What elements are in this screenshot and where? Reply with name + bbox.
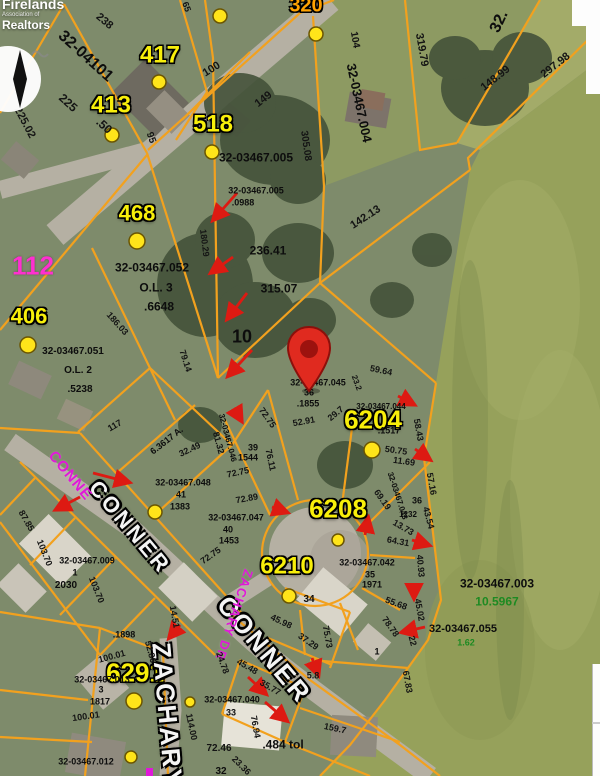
dimension-label: 22 xyxy=(406,635,418,647)
dimension-label: 117 xyxy=(106,418,123,433)
watermark-firelands: Firelands xyxy=(2,0,64,12)
dimension-label: 159.7 xyxy=(323,722,347,736)
dimension-label: 236.41 xyxy=(250,245,287,258)
dimension-label: 23.36 xyxy=(230,755,253,776)
ui-cutout-divider xyxy=(592,722,600,724)
dimension-label: 75.73 xyxy=(320,625,333,649)
parcel-number-label[interactable]: 413 xyxy=(91,92,131,117)
dimension-label: 72.46 xyxy=(206,744,231,755)
parcel-id-label: 1453 xyxy=(219,536,239,545)
watermark-realtors: Realtors xyxy=(2,18,64,32)
dimension-label: 297.98 xyxy=(539,51,573,81)
parcel-id-label: 32-03467.051 xyxy=(42,347,104,358)
dimension-label: 72.89 xyxy=(235,492,259,505)
dimension-label: 58.43 xyxy=(411,418,424,442)
dimension-label: 65 xyxy=(180,1,192,14)
parcel-id-label: 32-03467.005 xyxy=(228,186,284,195)
dimension-label: 305.08 xyxy=(298,130,313,162)
dimension-label: .50 xyxy=(94,116,115,137)
ui-cutout-panel-top-strip xyxy=(586,26,600,94)
dimension-label: 72.75 xyxy=(257,406,278,430)
parcel-id-label: 40 xyxy=(223,525,233,534)
dimension-label: 238 xyxy=(93,12,114,33)
dimension-label: 142.13 xyxy=(349,204,384,232)
parcel-id-label: 32-03467.004 xyxy=(344,62,374,143)
parcel-number-label[interactable]: 6208 xyxy=(309,495,367,522)
parcel-id-label: 32-03467.042 xyxy=(339,558,395,567)
parcel-id-label: .1517 xyxy=(378,426,401,435)
dimension-label: 100 xyxy=(201,60,223,80)
ui-cutout-panel-bottom xyxy=(592,664,600,776)
dimension-label: 5.8 xyxy=(307,671,320,680)
route-number-label: 112 xyxy=(12,252,54,279)
location-pin[interactable] xyxy=(286,325,334,397)
parcel-id-label: 32-03467.047 xyxy=(208,513,264,522)
dimension-label: 72.75 xyxy=(199,546,223,567)
dimension-label: 100.01 xyxy=(72,710,101,723)
dimension-label: 149 xyxy=(253,90,275,110)
dimension-label: 32.49 xyxy=(178,441,202,459)
parcel-number-label[interactable]: 6210 xyxy=(260,553,313,578)
dimension-label: 315.07 xyxy=(261,283,298,296)
dimension-label: 103.70 xyxy=(34,538,53,567)
dimension-label: 69.19 xyxy=(372,488,393,512)
dimension-label: 45.98 xyxy=(269,613,293,631)
dimension-label: 59.64 xyxy=(369,364,393,378)
watermark: Firelands Association of Realtors xyxy=(2,0,64,32)
parcel-id-label: 1 xyxy=(72,568,77,577)
parcel-number-label[interactable]: 468 xyxy=(119,201,156,224)
dimension-label: 180.29 xyxy=(198,229,211,257)
ui-cutout-panel-top xyxy=(572,0,600,26)
dimension-label: 95 xyxy=(143,131,157,145)
parcel-id-label: 34 xyxy=(303,595,314,606)
map-canvas[interactable]: 4174135184684066204620862106291320112CON… xyxy=(0,0,600,776)
dimension-label: 225 xyxy=(56,92,79,115)
parcel-id-label: 32-04101 xyxy=(54,28,115,86)
compass-icon[interactable] xyxy=(0,22,52,132)
parcel-id-label: .1898 xyxy=(113,630,136,639)
parcel-id-label: 33 xyxy=(226,708,236,717)
acreage-label: 10.5967 xyxy=(475,596,518,609)
parcel-id-label: 32-03467.005 xyxy=(219,152,293,165)
acreage-label: 1.62 xyxy=(457,638,475,647)
dimension-label: 114.00 xyxy=(184,713,199,741)
parcel-id-label: 1817 xyxy=(90,697,110,706)
parcel-id-label: 32-03467.052 xyxy=(115,262,189,275)
dimension-label: 45.02 xyxy=(412,598,425,622)
parcel-id-label: 1544 xyxy=(238,453,258,462)
parcel-id-label: O.L. 2 xyxy=(64,366,92,377)
dimension-label: 55.68 xyxy=(384,596,408,613)
dimension-label: 14.51 xyxy=(167,605,180,629)
parcel-id-label: 32 xyxy=(215,767,226,776)
dimension-label: 186.03 xyxy=(104,311,129,338)
dimension-label: 103.70 xyxy=(86,575,105,604)
parcel-id-label: O.L. 3 xyxy=(139,282,172,295)
parcel-id-label: 32. xyxy=(488,8,513,35)
parcel-id-label: 32-03467.055 xyxy=(429,624,497,636)
dimension-label: 76.94 xyxy=(248,715,261,739)
parcel-id-label: 1 xyxy=(374,647,379,656)
dimension-label: 76.11 xyxy=(263,448,277,472)
parcel-id-label: .0988 xyxy=(232,198,255,207)
parcel-id-label: 1971 xyxy=(362,580,382,589)
dimension-label: 72.75 xyxy=(226,466,250,480)
realtor-logo-icon xyxy=(32,52,48,57)
parcel-id-label: 2030 xyxy=(55,581,77,592)
parcel-id-label: 1383 xyxy=(170,502,190,511)
parcel-id-label: 41 xyxy=(176,490,186,499)
dimension-label: 43.54 xyxy=(421,506,436,530)
street-name-label: CONNE xyxy=(45,448,95,503)
dimension-label: 64.31 xyxy=(386,535,410,548)
parcel-id-label: .6648 xyxy=(144,301,174,314)
dimension-label: 148.99 xyxy=(479,64,513,94)
dimension-label: .484 tol xyxy=(262,739,303,752)
parcel-id-label: 1232 xyxy=(399,511,417,519)
dimension-label: 23.2 xyxy=(349,374,362,392)
dimension-label: 37.29 xyxy=(296,632,320,653)
dimension-label: 104 xyxy=(347,31,360,49)
dimension-label: 79.14 xyxy=(177,349,193,373)
magenta-marker xyxy=(146,768,153,776)
dimension-label: 57.16 xyxy=(424,472,437,496)
dimension-label: 67.83 xyxy=(400,670,413,694)
dimension-label: 29.7 xyxy=(326,405,345,423)
parcel-id-label: 32-03467.048 xyxy=(155,478,211,487)
parcel-id-label: 32-03467.012 xyxy=(58,757,114,766)
parcel-id-label: .5238 xyxy=(67,385,92,396)
parcel-number-label[interactable]: 320 xyxy=(289,0,322,17)
dimension-label: 319.79 xyxy=(412,32,429,67)
parcel-id-label: .1855 xyxy=(297,399,320,408)
dimension-label: 40.93 xyxy=(414,554,425,577)
parcel-id-label: 3 xyxy=(98,685,103,694)
parcel-number-label[interactable]: 406 xyxy=(11,304,48,327)
parcel-id-label: 32-03467.040 xyxy=(204,695,260,704)
parcel-id-label: 36 xyxy=(412,496,422,505)
parcel-number-label[interactable]: 417 xyxy=(140,42,180,67)
dimension-label: 10 xyxy=(232,328,252,347)
parcel-number-label[interactable]: 518 xyxy=(193,111,233,136)
dimension-label: 87.85 xyxy=(16,509,35,533)
dimension-label: 11.69 xyxy=(392,456,415,468)
dimension-label: 78.78 xyxy=(380,615,401,639)
dimension-label: 52.91 xyxy=(292,415,316,428)
parcel-id-label: 32-03467.044 xyxy=(356,403,405,411)
parcel-id-label: 32-03467.009 xyxy=(59,556,115,565)
parcel-id-label: 32-03467.003 xyxy=(460,578,534,591)
